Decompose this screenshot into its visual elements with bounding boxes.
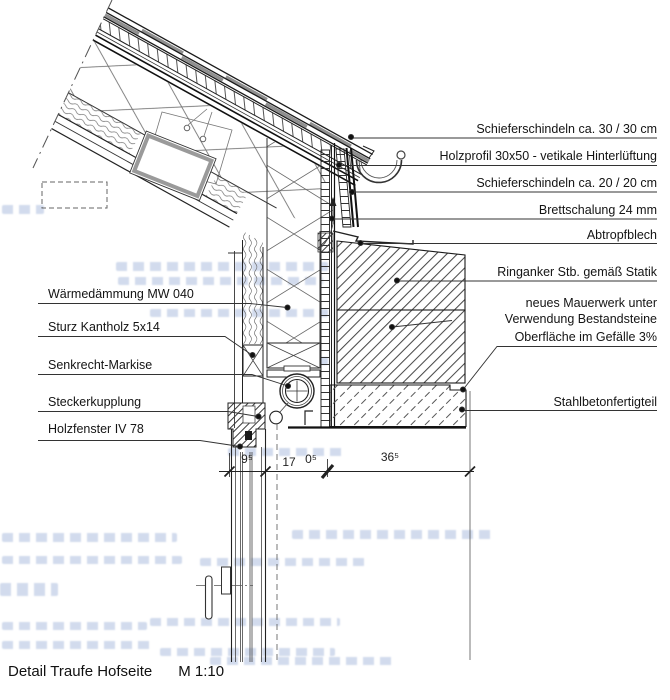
- dim-value-365: 36⁵: [372, 450, 408, 464]
- hidden-box-outline: [42, 182, 107, 208]
- detail-drawing-linework: [0, 0, 670, 700]
- architectural-detail-sheet: Schieferschindeln ca. 30 / 30 cm Holzpro…: [0, 0, 670, 700]
- drawing-title: Detail Traufe HofseiteM 1:10: [8, 663, 224, 680]
- label-schieferschindeln-30-30: Schieferschindeln ca. 30 / 30 cm: [476, 122, 657, 137]
- label-waermedaemmung: Wärmedämmung MW 040: [48, 287, 194, 302]
- label-abtropfblech: Abtropfblech: [587, 228, 657, 243]
- label-holzprofil: Holzprofil 30x50 - vetikale Hinterlüftun…: [440, 149, 657, 164]
- label-holzfenster: Holzfenster IV 78: [48, 422, 144, 437]
- label-sturz-kantholz: Sturz Kantholz 5x14: [48, 320, 160, 335]
- label-mauerwerk-line2: Verwendung Bestandsteine: [505, 312, 657, 327]
- ringanker-block: [337, 241, 465, 310]
- label-mauerwerk-line1: neues Mauerwerk unter: [526, 296, 657, 311]
- plug-coupling: [270, 411, 283, 424]
- label-oberflaeche-gefaelle: Oberfläche im Gefälle 3%: [515, 330, 657, 345]
- label-senkrecht-markise: Senkrecht-Markise: [48, 358, 152, 373]
- dim-value-05: 0⁵: [298, 452, 324, 466]
- window-handle: [196, 567, 253, 619]
- label-steckerkupplung: Steckerkupplung: [48, 395, 141, 410]
- drawing-title-text: Detail Traufe Hofseite: [8, 663, 152, 680]
- label-brettschalung: Brettschalung 24 mm: [539, 203, 657, 218]
- label-ringanker: Ringanker Stb. gemäß Statik: [497, 265, 657, 280]
- drawing-scale: M 1:10: [178, 663, 224, 680]
- label-schieferschindeln-20-20: Schieferschindeln ca. 20 / 20 cm: [476, 176, 657, 191]
- label-stahlbetonfertigteil: Stahlbetonfertigteil: [553, 395, 657, 410]
- dim-value-95: 9⁵: [233, 452, 261, 466]
- stahlbeton-fertigteil: [330, 385, 466, 427]
